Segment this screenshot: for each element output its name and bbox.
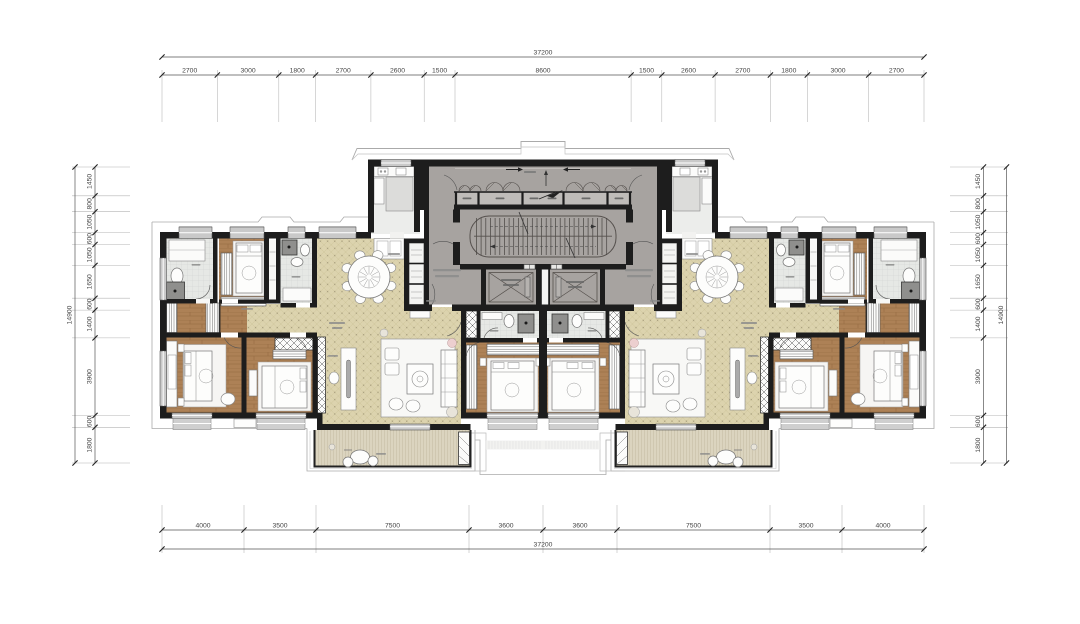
svg-text:3600: 3600	[572, 523, 587, 530]
svg-text:3500: 3500	[798, 523, 813, 530]
svg-text:2600: 2600	[681, 68, 696, 75]
svg-text:600: 600	[87, 298, 94, 310]
svg-text:1800: 1800	[781, 68, 796, 75]
svg-text:1800: 1800	[290, 68, 305, 75]
svg-text:2700: 2700	[336, 68, 351, 75]
svg-text:3600: 3600	[498, 523, 513, 530]
svg-text:3900: 3900	[87, 369, 94, 384]
svg-text:600: 600	[87, 416, 94, 428]
svg-text:600: 600	[975, 233, 982, 245]
svg-text:14900: 14900	[67, 305, 74, 324]
svg-text:3900: 3900	[975, 369, 982, 384]
svg-text:2700: 2700	[889, 68, 904, 75]
svg-text:1800: 1800	[975, 437, 982, 452]
svg-text:600: 600	[975, 298, 982, 310]
svg-text:600: 600	[87, 233, 94, 245]
svg-text:1450: 1450	[87, 174, 94, 189]
svg-text:2600: 2600	[390, 68, 405, 75]
svg-text:37200: 37200	[534, 542, 553, 549]
svg-text:800: 800	[975, 198, 982, 210]
svg-text:1650: 1650	[975, 274, 982, 289]
svg-text:3000: 3000	[241, 68, 256, 75]
svg-text:800: 800	[87, 198, 94, 210]
svg-text:14900: 14900	[998, 305, 1005, 324]
svg-text:2700: 2700	[735, 68, 750, 75]
svg-text:3500: 3500	[272, 523, 287, 530]
svg-text:1650: 1650	[87, 274, 94, 289]
svg-text:1050: 1050	[87, 214, 94, 229]
svg-text:1400: 1400	[975, 316, 982, 331]
svg-text:1050: 1050	[87, 247, 94, 262]
svg-text:7500: 7500	[385, 523, 400, 530]
svg-text:1400: 1400	[87, 316, 94, 331]
svg-text:1500: 1500	[432, 68, 447, 75]
svg-text:2700: 2700	[182, 68, 197, 75]
svg-text:4000: 4000	[875, 523, 890, 530]
svg-text:1050: 1050	[975, 247, 982, 262]
svg-text:3000: 3000	[830, 68, 845, 75]
svg-text:4000: 4000	[195, 523, 210, 530]
svg-text:1450: 1450	[975, 174, 982, 189]
svg-text:1050: 1050	[975, 214, 982, 229]
svg-text:8600: 8600	[535, 68, 550, 75]
svg-text:1500: 1500	[639, 68, 654, 75]
svg-text:7500: 7500	[686, 523, 701, 530]
svg-text:37200: 37200	[534, 50, 553, 57]
svg-text:1800: 1800	[87, 437, 94, 452]
svg-text:600: 600	[975, 416, 982, 428]
